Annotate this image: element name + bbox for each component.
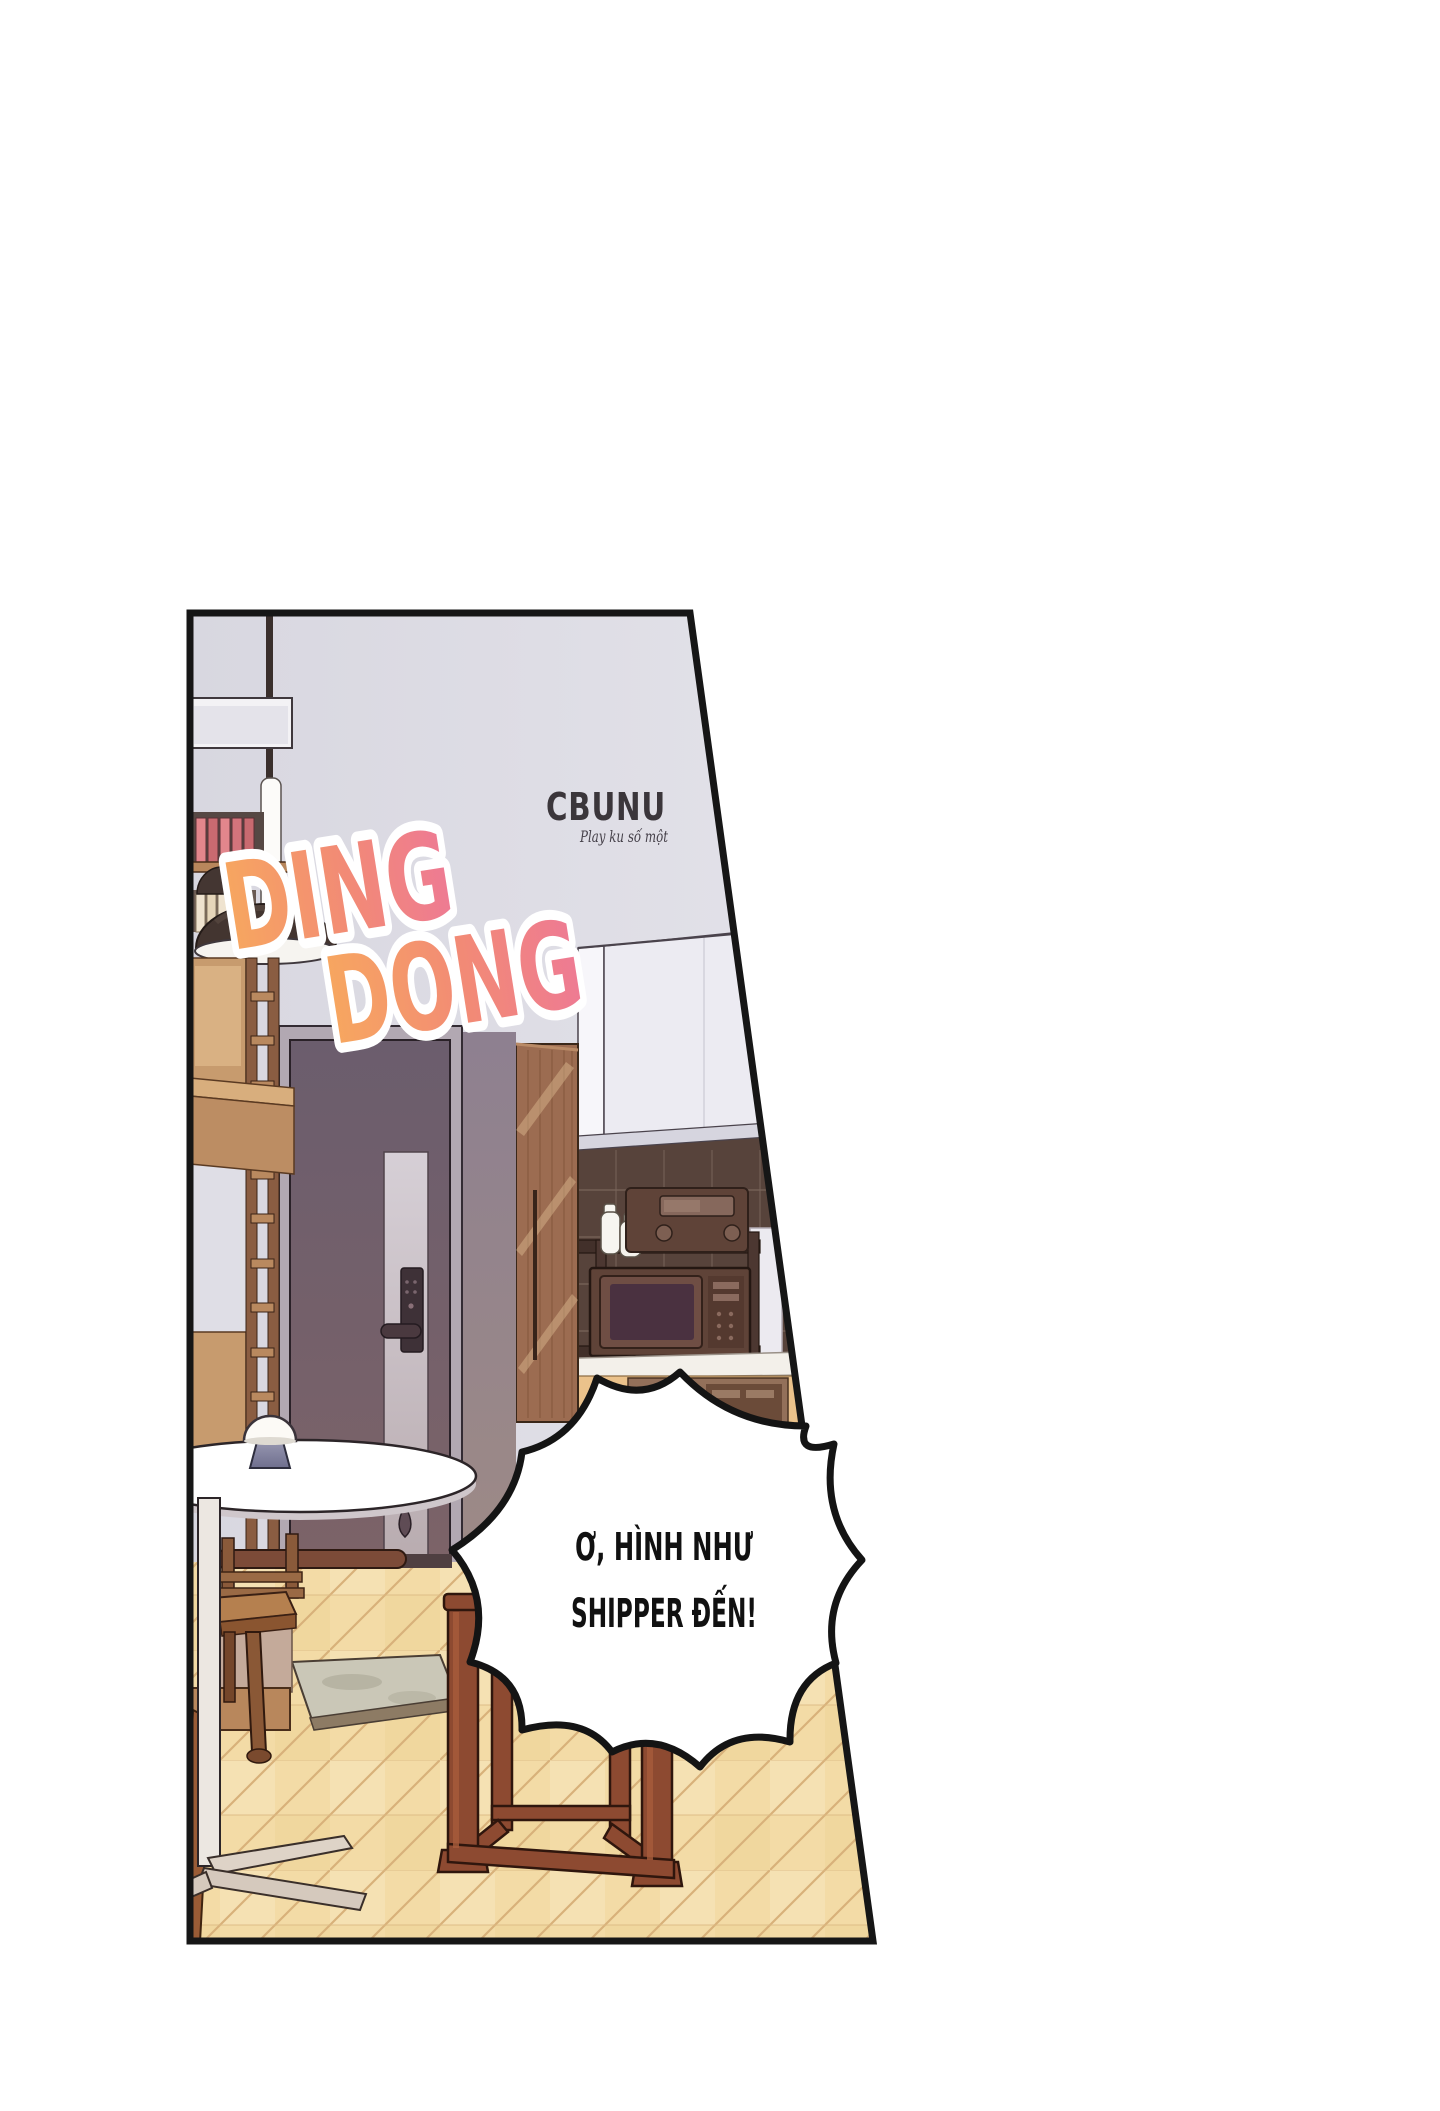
comic-panel-canvas: CBUNU Play ku số một DING DONG Ơ, HÌNH N… xyxy=(0,0,1440,2111)
table-lamp xyxy=(244,1416,296,1468)
closet xyxy=(516,1044,578,1422)
comic-page: CBUNU Play ku số một DING DONG Ơ, HÌNH N… xyxy=(0,0,1440,2111)
closet-handle xyxy=(533,1190,537,1360)
door-lock xyxy=(401,1268,423,1352)
toaster-knob xyxy=(656,1225,672,1241)
bottle xyxy=(601,1212,620,1254)
watermark-tagline: Play ku số một xyxy=(579,827,668,846)
toaster-oven xyxy=(626,1188,748,1252)
door-handle xyxy=(381,1324,421,1338)
microwave-window xyxy=(610,1284,694,1340)
chair-top-rail xyxy=(216,1550,406,1568)
toaster-knob xyxy=(724,1225,740,1241)
speech-text-line-1: Ơ, HÌNH NHƯ xyxy=(575,1525,753,1569)
speech-text-line-2: SHIPPER ĐẾN! xyxy=(571,1583,757,1637)
watermark-logo: CBUNU xyxy=(546,785,666,829)
table-leg xyxy=(198,1498,220,1866)
desk-board-front xyxy=(190,1096,294,1174)
microwave xyxy=(590,1268,750,1356)
